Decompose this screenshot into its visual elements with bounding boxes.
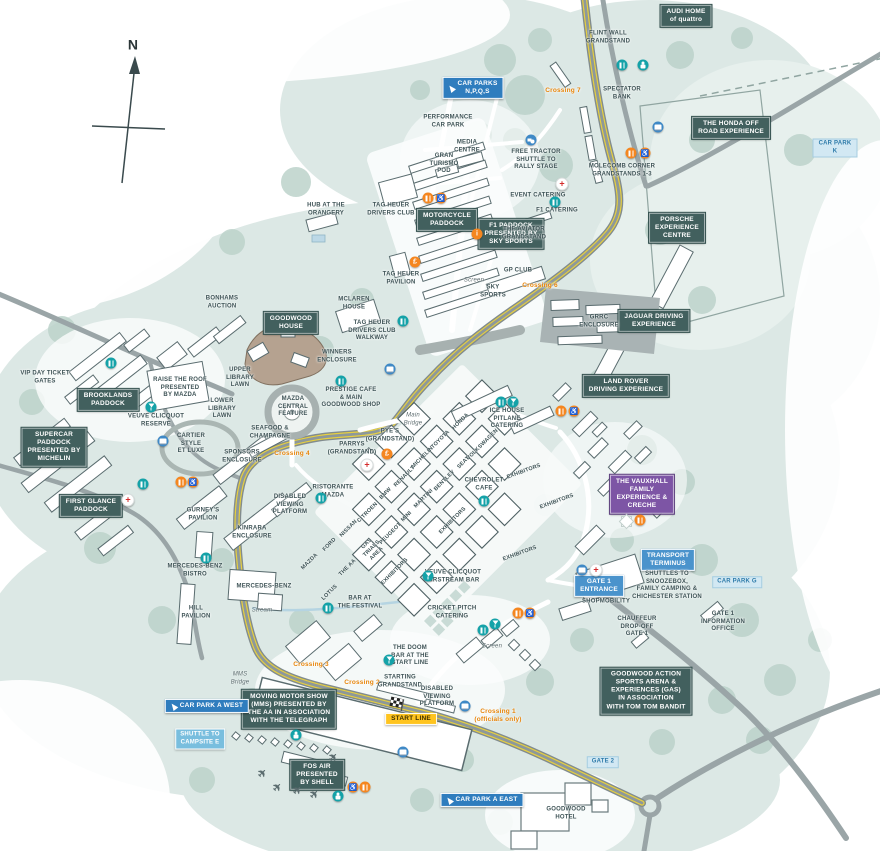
goodwood-festival-map: NAUDI HOME of quattroTHE HONDA OFF ROAD …	[0, 0, 880, 851]
map-base-art	[0, 0, 880, 851]
